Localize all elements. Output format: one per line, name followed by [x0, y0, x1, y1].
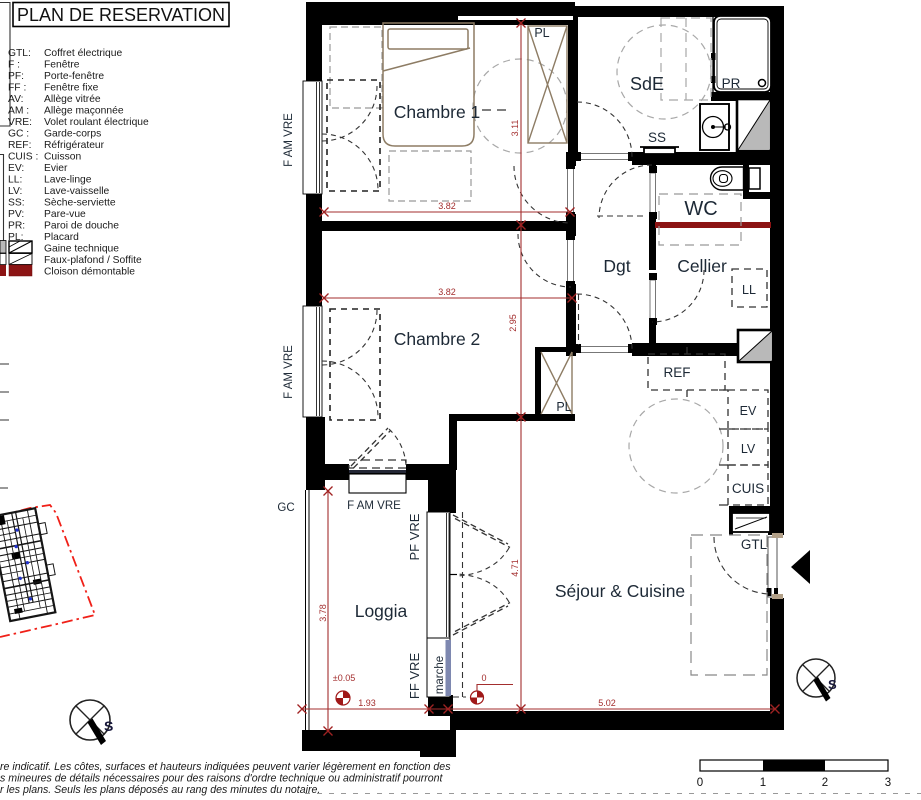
svg-text:S: S — [828, 677, 837, 692]
svg-text:2: 2 — [822, 777, 828, 789]
svg-text:0: 0 — [481, 673, 486, 683]
svg-text:4.71: 4.71 — [510, 559, 520, 577]
svg-text:S: S — [104, 718, 113, 734]
svg-text:Placard: Placard — [44, 232, 79, 243]
svg-text:PF:: PF: — [8, 71, 24, 82]
svg-text:EV:: EV: — [8, 163, 24, 174]
svg-text:Porte-fenêtre: Porte-fenêtre — [44, 71, 104, 82]
svg-text:LV: LV — [741, 442, 756, 456]
svg-text:±0.05: ±0.05 — [333, 673, 355, 683]
svg-text:Garde-corps: Garde-corps — [44, 129, 101, 140]
svg-text:Chambre 1: Chambre 1 — [394, 102, 481, 122]
svg-text:Allège vitrée: Allège vitrée — [44, 94, 101, 105]
svg-text:Séjour & Cuisine: Séjour & Cuisine — [555, 581, 685, 601]
svg-text:PR: PR — [722, 76, 741, 91]
svg-text:Allège maçonnée: Allège maçonnée — [44, 106, 124, 117]
svg-text:PR:: PR: — [8, 221, 25, 232]
svg-text:Volet roulant électrique: Volet roulant électrique — [44, 117, 149, 128]
svg-text:Pare-vue: Pare-vue — [44, 209, 86, 220]
svg-text:AM :: AM : — [8, 106, 29, 117]
svg-text:REF:: REF: — [8, 140, 31, 151]
svg-text:Faux-plafond / Soffite: Faux-plafond / Soffite — [44, 255, 142, 266]
svg-text:SS:: SS: — [8, 198, 25, 209]
svg-text:GC :: GC : — [8, 129, 29, 140]
svg-text:r les plans. Seuls les plans d: r les plans. Seuls les plans déposés au … — [0, 784, 320, 796]
svg-text:FF :: FF : — [8, 83, 26, 94]
svg-text:Cellier: Cellier — [677, 256, 727, 276]
svg-text:SdE: SdE — [630, 74, 664, 94]
svg-text:3: 3 — [885, 777, 891, 789]
svg-text:F AM VRE: F AM VRE — [283, 113, 295, 167]
svg-text:F AM VRE: F AM VRE — [283, 345, 295, 399]
svg-text:3.11: 3.11 — [510, 120, 520, 137]
svg-text:F :: F : — [8, 60, 20, 71]
svg-text:3.82: 3.82 — [438, 201, 456, 211]
svg-text:Cuisson: Cuisson — [44, 152, 81, 163]
svg-text:3.82: 3.82 — [438, 287, 456, 297]
svg-text:1.93: 1.93 — [358, 698, 376, 708]
svg-text:Gaine technique: Gaine technique — [44, 244, 119, 255]
svg-text:Coffret électrique: Coffret électrique — [44, 48, 122, 59]
svg-text:PF VRE: PF VRE — [407, 513, 422, 560]
svg-text:REF: REF — [664, 365, 691, 380]
svg-text:Lave-vaisselle: Lave-vaisselle — [44, 186, 110, 197]
svg-text:2.95: 2.95 — [508, 314, 518, 332]
svg-text:F AM VRE: F AM VRE — [347, 500, 401, 512]
svg-text:AV:: AV: — [8, 94, 23, 105]
svg-text:Evier: Evier — [44, 163, 68, 174]
svg-text:Lave-linge: Lave-linge — [44, 175, 92, 186]
svg-text:PV:: PV: — [8, 209, 24, 220]
svg-text:marche: marche — [434, 656, 446, 694]
svg-text:5.02: 5.02 — [598, 698, 616, 708]
svg-text:GC: GC — [277, 502, 294, 514]
svg-text:s mineures de détails nécessai: s mineures de détails nécessaires pour d… — [0, 773, 444, 785]
svg-text:Paroi de douche: Paroi de douche — [44, 221, 119, 232]
svg-text:Loggia: Loggia — [355, 601, 408, 621]
svg-text:0: 0 — [697, 777, 703, 789]
svg-text:CUIS :: CUIS : — [8, 152, 38, 163]
svg-text:PLAN DE RESERVATION: PLAN DE RESERVATION — [17, 5, 225, 25]
svg-text:1: 1 — [760, 777, 766, 789]
svg-text:Fenêtre fixe: Fenêtre fixe — [44, 83, 99, 94]
svg-text:LL:: LL: — [8, 175, 22, 186]
svg-text:LL: LL — [742, 283, 756, 297]
svg-text:PL: PL — [556, 400, 571, 414]
svg-text:Cloison démontable: Cloison démontable — [44, 267, 135, 278]
svg-text:Réfrigérateur: Réfrigérateur — [44, 140, 105, 151]
svg-text:CUIS: CUIS — [732, 481, 764, 496]
svg-text:WC: WC — [684, 198, 717, 220]
svg-text:3.78: 3.78 — [318, 604, 328, 622]
svg-text:PL: PL — [534, 26, 549, 40]
svg-text:Sèche-serviette: Sèche-serviette — [44, 198, 116, 209]
svg-text:LV:: LV: — [8, 186, 22, 197]
svg-text:SS: SS — [648, 130, 666, 145]
svg-text:EV: EV — [740, 404, 757, 418]
svg-text:re indicatif. Les côtes, surfa: re indicatif. Les côtes, surfaces et hau… — [0, 761, 451, 773]
svg-text:GTL: GTL — [741, 537, 768, 552]
svg-text:Dgt: Dgt — [603, 256, 630, 276]
svg-text:Chambre 2: Chambre 2 — [394, 329, 481, 349]
svg-text:FF VRE: FF VRE — [407, 653, 422, 700]
svg-text:GTL:: GTL: — [8, 48, 31, 59]
svg-text:VRE:: VRE: — [8, 117, 32, 128]
svg-text:Fenêtre: Fenêtre — [44, 60, 80, 71]
